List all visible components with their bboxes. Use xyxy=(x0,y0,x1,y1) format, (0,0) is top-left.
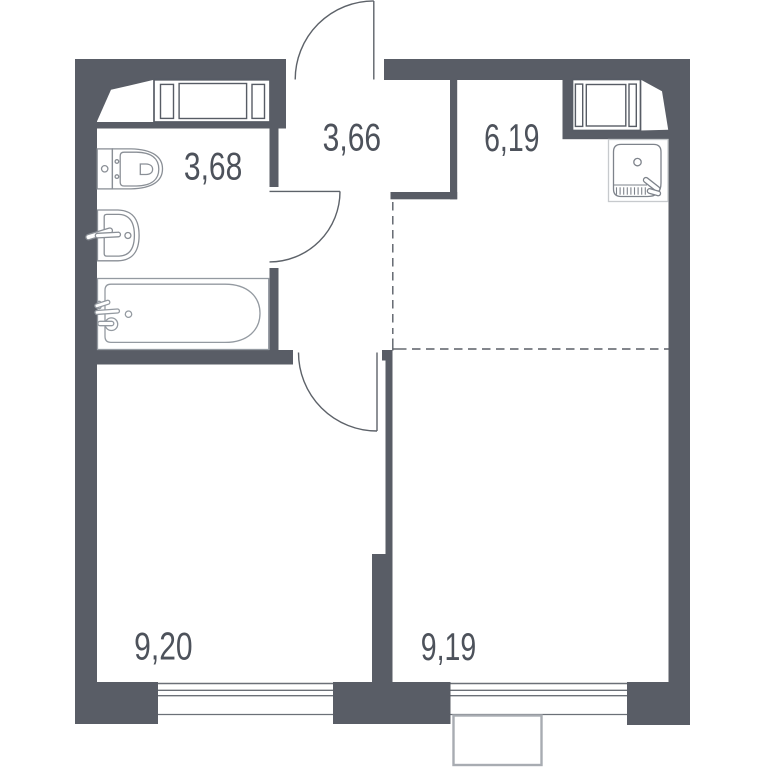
svg-text:3,68: 3,68 xyxy=(184,146,242,188)
svg-text:6,19: 6,19 xyxy=(484,117,539,160)
svg-text:3,66: 3,66 xyxy=(323,117,381,159)
svg-text:9,19: 9,19 xyxy=(421,626,476,669)
svg-text:9,20: 9,20 xyxy=(134,626,192,668)
